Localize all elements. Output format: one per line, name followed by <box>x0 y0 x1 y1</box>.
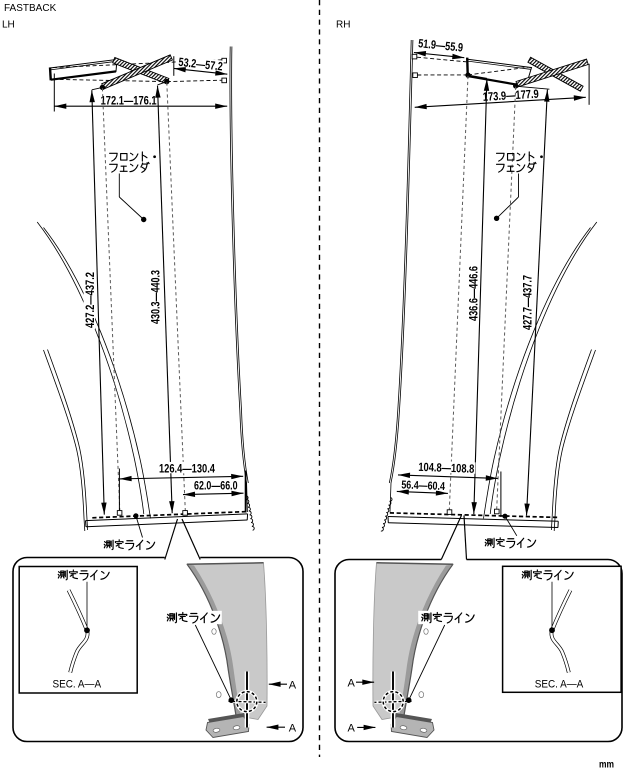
svg-text:mm: mm <box>599 760 614 771</box>
svg-text:62.0—66.0: 62.0—66.0 <box>194 480 238 492</box>
svg-text:126.4—130.4: 126.4—130.4 <box>159 461 215 475</box>
svg-text:104.8—108.8: 104.8—108.8 <box>418 460 475 476</box>
svg-text:SEC. A—A: SEC. A—A <box>53 678 102 690</box>
svg-text:A: A <box>289 679 297 691</box>
svg-text:RH: RH <box>336 20 350 31</box>
svg-text:172.1—176.1: 172.1—176.1 <box>101 93 157 107</box>
svg-text:56.4—60.4: 56.4—60.4 <box>401 479 445 493</box>
svg-text:A: A <box>347 677 355 689</box>
svg-text:A: A <box>347 723 355 735</box>
svg-text:427.7—437.7: 427.7—437.7 <box>521 275 535 330</box>
svg-text:A: A <box>289 722 297 734</box>
svg-text:FASTBACK: FASTBACK <box>4 3 57 14</box>
svg-text:SEC. A—A: SEC. A—A <box>535 678 584 690</box>
svg-text:430.3—440.3: 430.3—440.3 <box>149 270 163 324</box>
svg-text:LH: LH <box>2 20 15 31</box>
svg-text:427.2—437.2: 427.2—437.2 <box>83 272 97 328</box>
svg-text:436.6—446.6: 436.6—446.6 <box>467 266 481 321</box>
